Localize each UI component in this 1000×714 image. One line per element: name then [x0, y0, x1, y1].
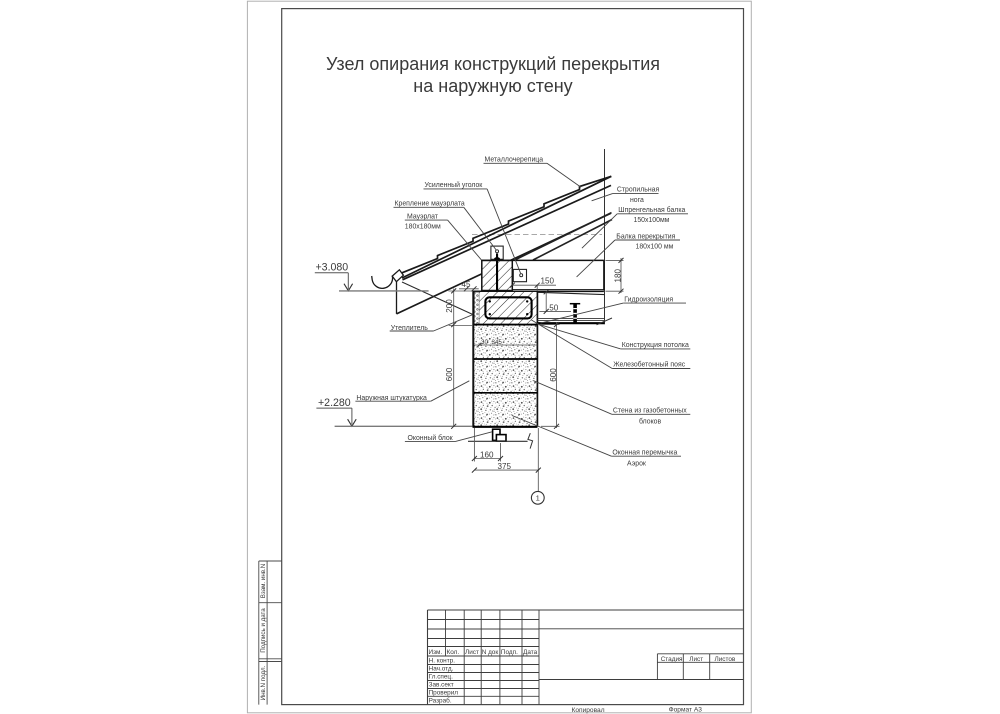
svg-text:Проверил: Проверил: [429, 690, 459, 697]
svg-text:Кол.: Кол.: [447, 649, 460, 656]
svg-text:600: 600: [549, 368, 558, 382]
svg-text:Взам. инв.N: Взам. инв.N: [260, 564, 267, 598]
svg-text:180х100 мм: 180х100 мм: [636, 244, 674, 251]
svg-text:Разраб.: Разраб.: [429, 697, 452, 705]
svg-text:Зав.сект: Зав.сект: [429, 682, 454, 689]
svg-text:Лист: Лист: [689, 656, 703, 663]
svg-text:Дата: Дата: [523, 649, 538, 656]
svg-text:Подп.: Подп.: [501, 649, 518, 656]
svg-text:Стена из газобетонных: Стена из газобетонных: [613, 407, 687, 415]
svg-text:+2.280: +2.280: [318, 397, 351, 409]
svg-text:150х100мм: 150х100мм: [634, 217, 670, 224]
svg-text:Балка перекрытия: Балка перекрытия: [616, 233, 675, 240]
svg-text:Копировал: Копировал: [572, 707, 605, 714]
svg-text:Листов: Листов: [715, 656, 736, 663]
svg-text:нога: нога: [630, 197, 644, 204]
svg-text:200: 200: [445, 299, 454, 313]
svg-text:Мауэрлат: Мауэрлат: [407, 213, 439, 220]
svg-text:N док: N док: [482, 649, 499, 656]
svg-text:Гл.спец.: Гл.спец.: [429, 674, 453, 681]
svg-text:на наружную стену: на наружную стену: [413, 76, 572, 96]
svg-text:45: 45: [462, 280, 472, 289]
svg-text:600: 600: [445, 367, 454, 381]
svg-text:блоков: блоков: [639, 418, 661, 426]
svg-text:Стадия: Стадия: [661, 656, 683, 663]
svg-text:Подпись и дата: Подпись и дата: [260, 608, 267, 653]
svg-text:50: 50: [549, 303, 559, 312]
svg-text:Лист: Лист: [465, 649, 479, 656]
svg-text:Конструкция потолка: Конструкция потолка: [622, 342, 689, 349]
svg-text:Инв.N подл.: Инв.N подл.: [260, 665, 267, 700]
svg-text:Шпренгельная балка: Шпренгельная балка: [618, 206, 685, 214]
svg-text:+3.080: +3.080: [316, 261, 349, 273]
svg-text:Оконный блок: Оконный блок: [408, 434, 454, 442]
svg-text:30: 30: [481, 339, 488, 346]
svg-text:345: 345: [492, 339, 503, 346]
svg-text:Нач.отд.: Нач.отд.: [429, 666, 454, 673]
svg-text:Гидроизоляция: Гидроизоляция: [624, 296, 673, 303]
svg-text:Усиленный уголок: Усиленный уголок: [425, 181, 484, 189]
svg-text:Аэрок: Аэрок: [627, 461, 647, 468]
svg-text:Формат А3: Формат А3: [669, 707, 703, 714]
svg-text:1: 1: [536, 494, 540, 503]
svg-text:Стропильная: Стропильная: [617, 187, 660, 194]
svg-text:Оконная перемычка: Оконная перемычка: [612, 449, 677, 456]
svg-text:160: 160: [480, 450, 494, 459]
svg-text:Металлочерепица: Металлочерепица: [485, 157, 544, 164]
svg-text:Железобетонный пояс: Железобетонный пояс: [613, 361, 686, 369]
svg-text:150: 150: [541, 277, 555, 286]
svg-text:Изм.: Изм.: [429, 649, 443, 656]
svg-text:Н. контр.: Н. контр.: [429, 658, 456, 665]
svg-text:180: 180: [613, 269, 622, 283]
svg-text:Узел опирания конструкций пере: Узел опирания конструкций перекрытия: [326, 54, 660, 74]
svg-text:375: 375: [498, 462, 512, 471]
svg-text:Крепление мауэрлата: Крепление мауэрлата: [395, 200, 465, 207]
svg-text:180х180мм: 180х180мм: [405, 224, 441, 231]
